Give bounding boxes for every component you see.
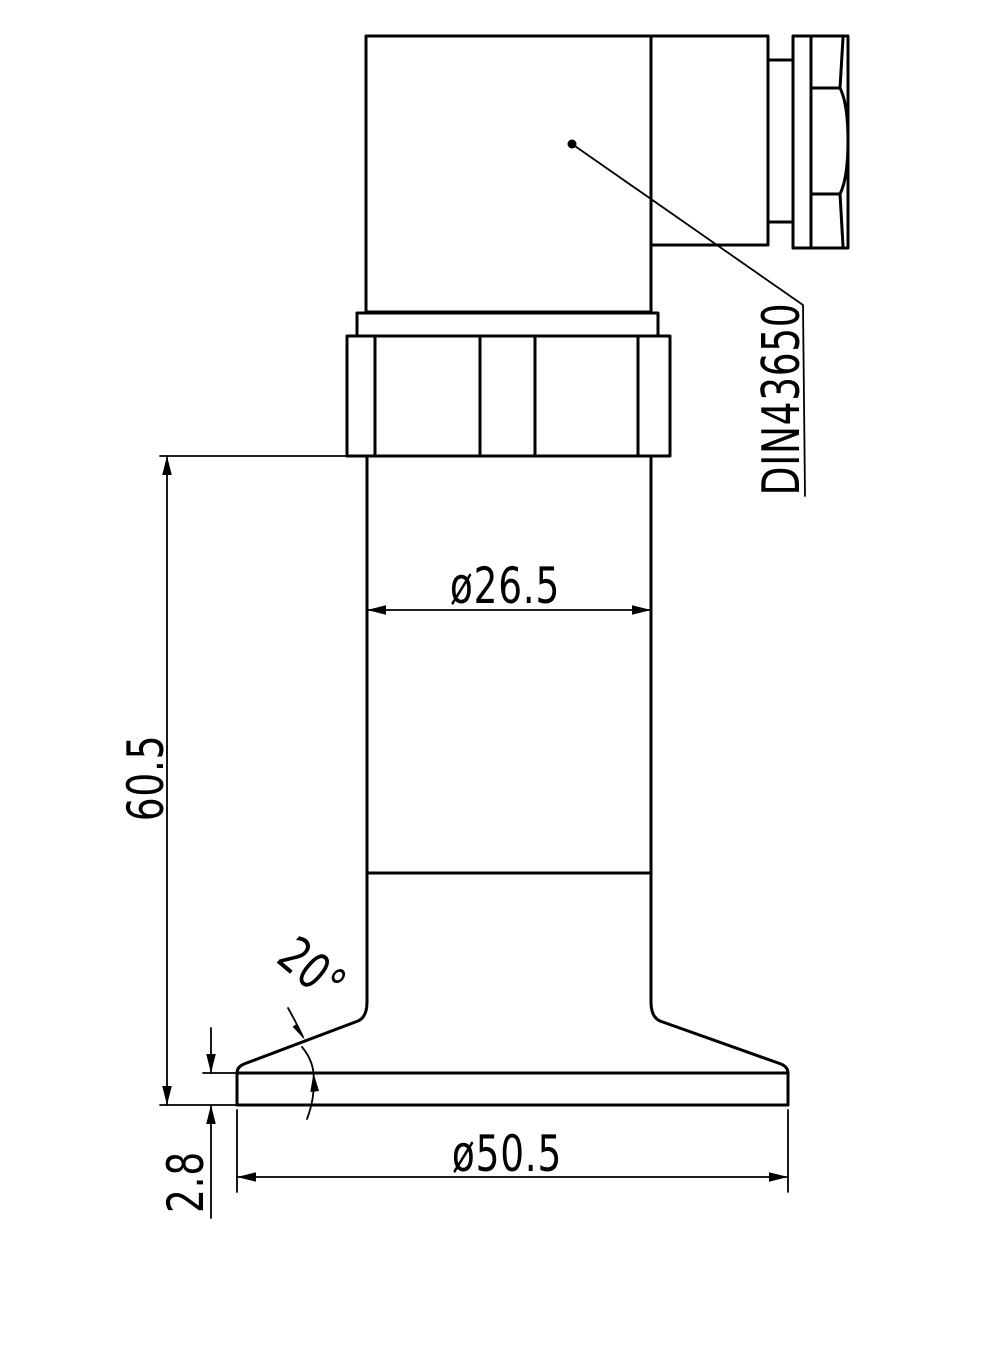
label-clamp-diameter: ø50.5	[452, 1126, 562, 1184]
label-rim-thickness: 2.8	[158, 1151, 216, 1213]
label-body-diameter: ø26.5	[450, 558, 560, 616]
technical-drawing: ø26.5 ø50.5 60.5 2.8 20° DIN43650	[0, 0, 1000, 1349]
drawing-sheet: ø26.5 ø50.5 60.5 2.8 20° DIN43650	[0, 0, 1000, 1349]
label-overall-height: 60.5	[118, 735, 176, 821]
leader-dot-icon	[568, 140, 577, 149]
label-connector-standard: DIN43650	[751, 303, 812, 496]
